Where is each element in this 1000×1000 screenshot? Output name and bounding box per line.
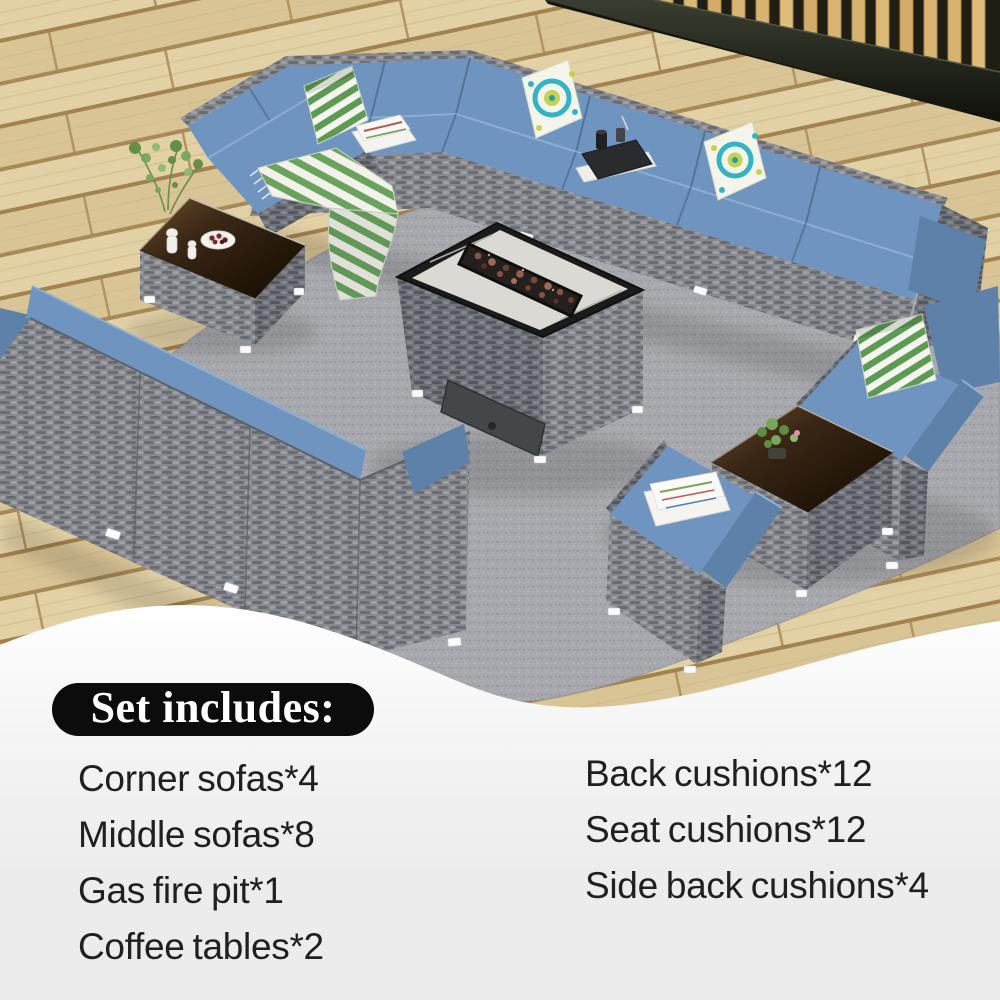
product-image-card: Set includes: Corner sofas*4 Middle sofa… — [0, 0, 1000, 1000]
decor-bowl — [201, 231, 235, 249]
patio-scene-photo — [0, 0, 1000, 1000]
